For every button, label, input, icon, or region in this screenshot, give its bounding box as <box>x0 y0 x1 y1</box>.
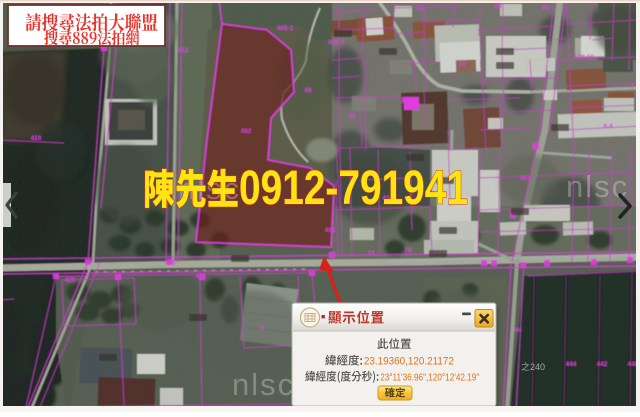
svg-text:420-4: 420-4 <box>328 39 345 46</box>
svg-text:178-15: 178-15 <box>574 54 595 61</box>
svg-text:23°11'36.96",120°12'42.19": 23°11'36.96",120°12'42.19" <box>380 372 479 384</box>
svg-text:44: 44 <box>514 327 522 334</box>
svg-text:3: 3 <box>630 83 634 90</box>
svg-text:442: 442 <box>597 361 608 368</box>
svg-text:46: 46 <box>348 113 356 120</box>
svg-text:之240: 之240 <box>521 361 545 372</box>
svg-text:23.19360,120.21172: 23.19360,120.21172 <box>364 356 454 368</box>
svg-text:56: 56 <box>458 61 466 68</box>
svg-text:482: 482 <box>241 128 252 135</box>
svg-text:405-2: 405-2 <box>277 25 294 32</box>
svg-text:45: 45 <box>541 5 549 12</box>
svg-text:410: 410 <box>31 135 42 142</box>
svg-text:405: 405 <box>325 227 336 234</box>
svg-text:412: 412 <box>178 47 189 54</box>
svg-text:76: 76 <box>404 247 412 254</box>
svg-text:9: 9 <box>260 325 264 332</box>
svg-text:58: 58 <box>494 3 502 10</box>
svg-text:426: 426 <box>165 260 176 267</box>
svg-text:48: 48 <box>304 87 312 94</box>
svg-text:420: 420 <box>65 277 76 284</box>
svg-text:74: 74 <box>367 250 375 257</box>
svg-text:0912-791941: 0912-791941 <box>239 162 468 215</box>
svg-text:nlsc: nlsc <box>232 367 295 402</box>
svg-text:431: 431 <box>196 273 207 280</box>
svg-text:461: 461 <box>520 175 531 182</box>
svg-text:8-4: 8-4 <box>603 123 613 130</box>
svg-text:72: 72 <box>416 5 424 12</box>
svg-text:nlsc: nlsc <box>566 169 629 204</box>
svg-text:444: 444 <box>566 361 577 368</box>
